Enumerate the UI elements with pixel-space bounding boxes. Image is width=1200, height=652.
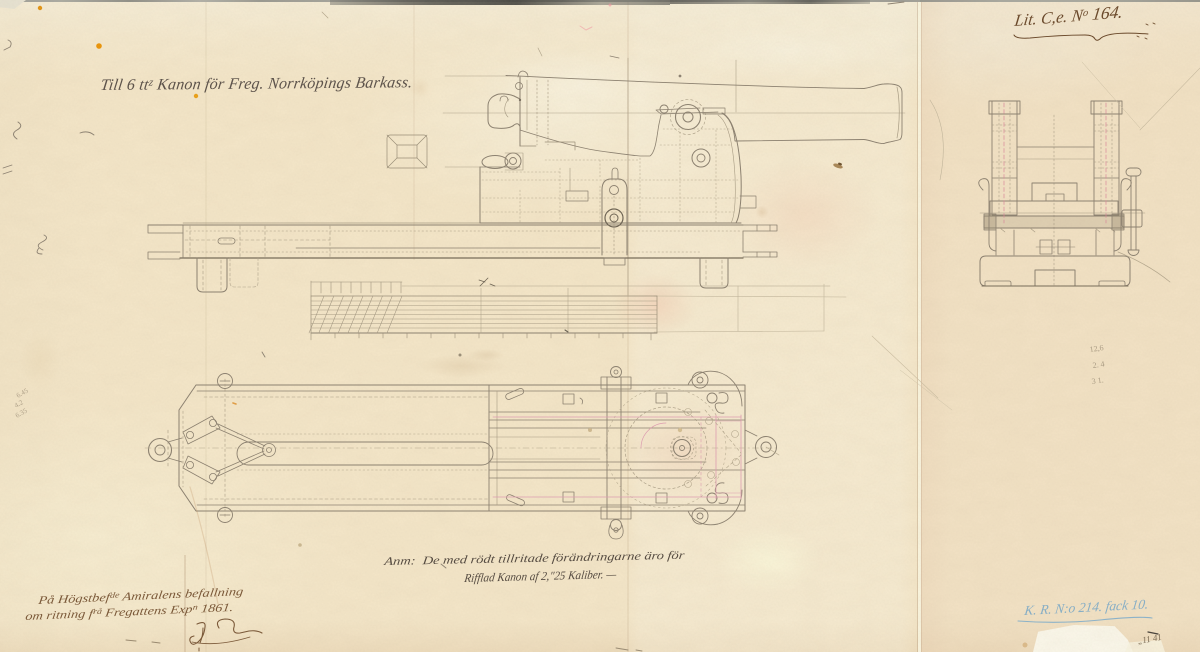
- svg-text:12,6: 12,6: [1089, 343, 1104, 354]
- svg-text:Anm: De med rödt tillritade f: Anm: De med rödt tillritade förändringar…: [382, 550, 685, 568]
- svg-text:6.45: 6.45: [15, 386, 30, 399]
- svg-text:3 1.: 3 1.: [1091, 375, 1104, 386]
- svg-text:„11 41: „11 41: [1137, 632, 1163, 646]
- svg-text:Lit. C,e. No 164.: Lit. C,e. No 164.: [1012, 1, 1124, 30]
- svg-text:K. R. N:o 214. fack 10.: K. R. N:o 214. fack 10.: [1023, 597, 1150, 619]
- svg-text:Till 6 ttz Kanon för Freg. Nor: Till 6 ttz Kanon för Freg. Norrköpings B…: [99, 74, 413, 94]
- svg-text:2. 4: 2. 4: [1092, 359, 1105, 370]
- svg-text:Rifflad Kanon af 2,"25 Kaliber: Rifflad Kanon af 2,"25 Kaliber. —: [463, 567, 618, 585]
